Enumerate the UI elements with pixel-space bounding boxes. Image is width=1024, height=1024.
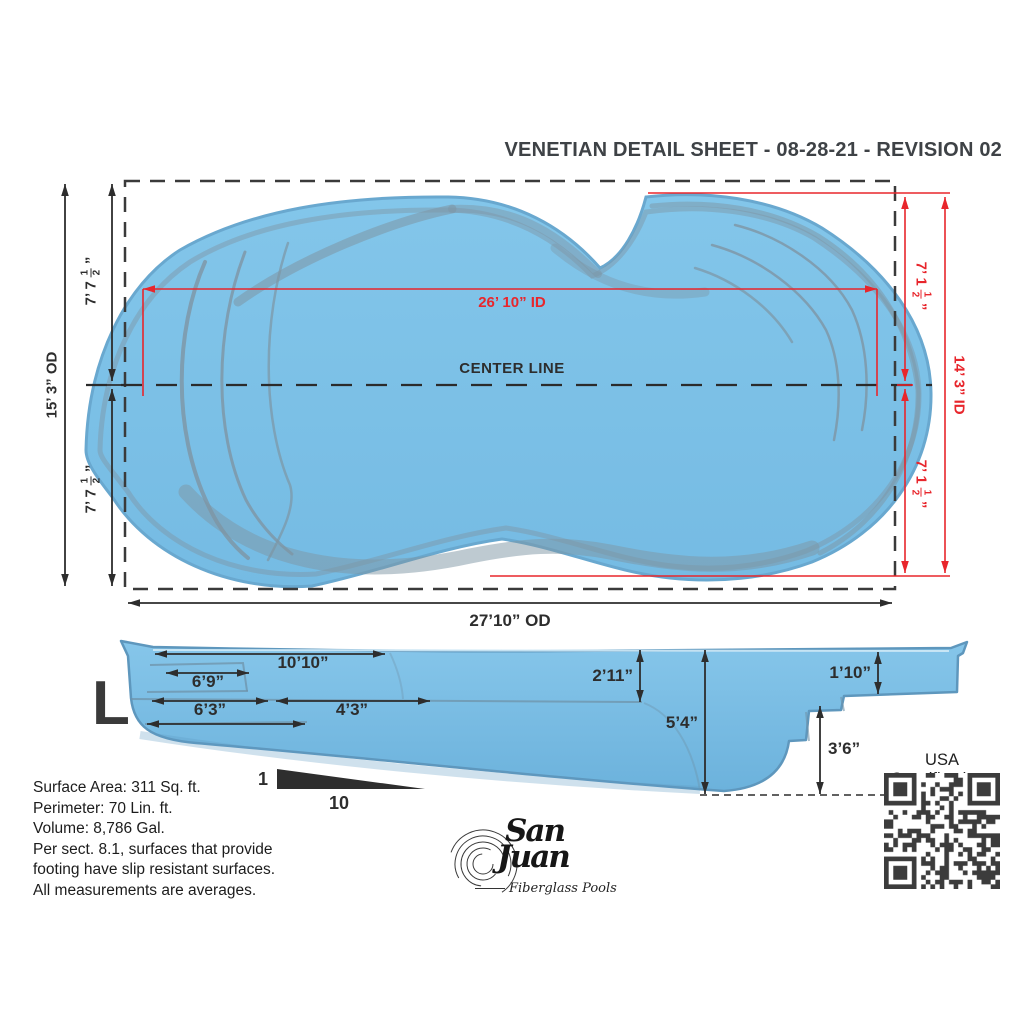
- inches-mark: ”: [83, 257, 100, 265]
- inches-mark: ”: [913, 501, 930, 509]
- fraction: 12: [81, 476, 102, 485]
- dim-red-half-bottom-text: 7’ 1: [913, 460, 930, 484]
- dim-id-height-text: 14’ 3” ID: [951, 355, 968, 414]
- top-view: CENTER LINE 27’10” OD: [65, 181, 950, 630]
- dim-id-height: 14’ 3” ID: [951, 355, 968, 414]
- dim-half-bottom-text: 7’ 7: [83, 489, 100, 513]
- note-averages: All measurements are averages.: [33, 881, 275, 902]
- slope-indicator: 1 10: [258, 769, 425, 813]
- fraction: 12: [911, 488, 932, 497]
- fraction-numerator: 1: [923, 292, 932, 298]
- dim-deep-step-depth: 3’6”: [828, 739, 860, 758]
- dim-half-top-text: 7’ 7: [83, 281, 100, 305]
- spec-notes: Surface Area: 311 Sq. ft. Perimeter: 70 …: [33, 778, 275, 901]
- id-width-label: 26’ 10” ID: [478, 294, 546, 311]
- qr-code: [884, 773, 1000, 889]
- dim-right-bench-depth: 1’10”: [829, 663, 871, 682]
- fraction-numerator: 1: [81, 478, 90, 484]
- dim-shallow-b: 4’3”: [336, 700, 368, 719]
- dim-top-length: 10’10”: [277, 653, 328, 672]
- dim-bench-length: 6’9”: [192, 672, 224, 691]
- note-slip-1: Per sect. 8.1, surfaces that provide: [33, 840, 275, 861]
- center-line-label: CENTER LINE: [459, 360, 565, 377]
- dim-red-half-bottom: 7’ 1 12 ”: [911, 460, 932, 509]
- san-juan-logo: San Juan Fiberglass Pools: [445, 815, 635, 905]
- od-width-label: 27’10” OD: [469, 611, 550, 630]
- dim-half-top: 7’ 7 12 ”: [81, 257, 102, 306]
- fraction-denominator: 2: [911, 292, 920, 298]
- fraction-numerator: 1: [923, 490, 932, 496]
- slope-run-label: 10: [329, 793, 349, 813]
- fraction-numerator: 1: [81, 270, 90, 276]
- note-surface-area: Surface Area: 311 Sq. ft.: [33, 778, 275, 799]
- dim-red-half-top: 7’ 1 12 ”: [911, 262, 932, 311]
- logo-word-juan: Juan: [497, 843, 569, 871]
- dim-od-height-text: 15’ 3” OD: [44, 352, 61, 419]
- detail-sheet: CENTER LINE 27’10” OD: [0, 0, 1024, 1024]
- note-volume: Volume: 8,786 Gal.: [33, 819, 275, 840]
- dim-half-bottom: 7’ 7 12 ”: [81, 465, 102, 514]
- dim-red-half-top-text: 7’ 1: [913, 262, 930, 286]
- fraction-denominator: 2: [911, 490, 920, 496]
- inches-mark: ”: [83, 465, 100, 473]
- dim-shallow-a: 6’3”: [194, 700, 226, 719]
- dim-shallow-depth: 2’11”: [592, 666, 633, 685]
- dim-max-depth: 5’4”: [666, 713, 698, 732]
- logo-tagline-text: Fiberglass Pools: [509, 881, 617, 896]
- note-perimeter: Perimeter: 70 Lin. ft.: [33, 799, 275, 820]
- logo-tagline: Fiberglass Pools: [475, 881, 617, 896]
- inches-mark: ”: [913, 303, 930, 311]
- dim-od-height: 15’ 3” OD: [44, 352, 61, 419]
- fraction: 12: [81, 268, 102, 277]
- fraction-denominator: 2: [93, 270, 102, 276]
- model-size-label: L: [92, 669, 130, 738]
- note-slip-2: footing have slip resistant surfaces.: [33, 860, 275, 881]
- sheet-title: VENETIAN DETAIL SHEET - 08-28-21 - REVIS…: [505, 139, 1002, 162]
- fraction: 12: [911, 290, 932, 299]
- fraction-denominator: 2: [93, 478, 102, 484]
